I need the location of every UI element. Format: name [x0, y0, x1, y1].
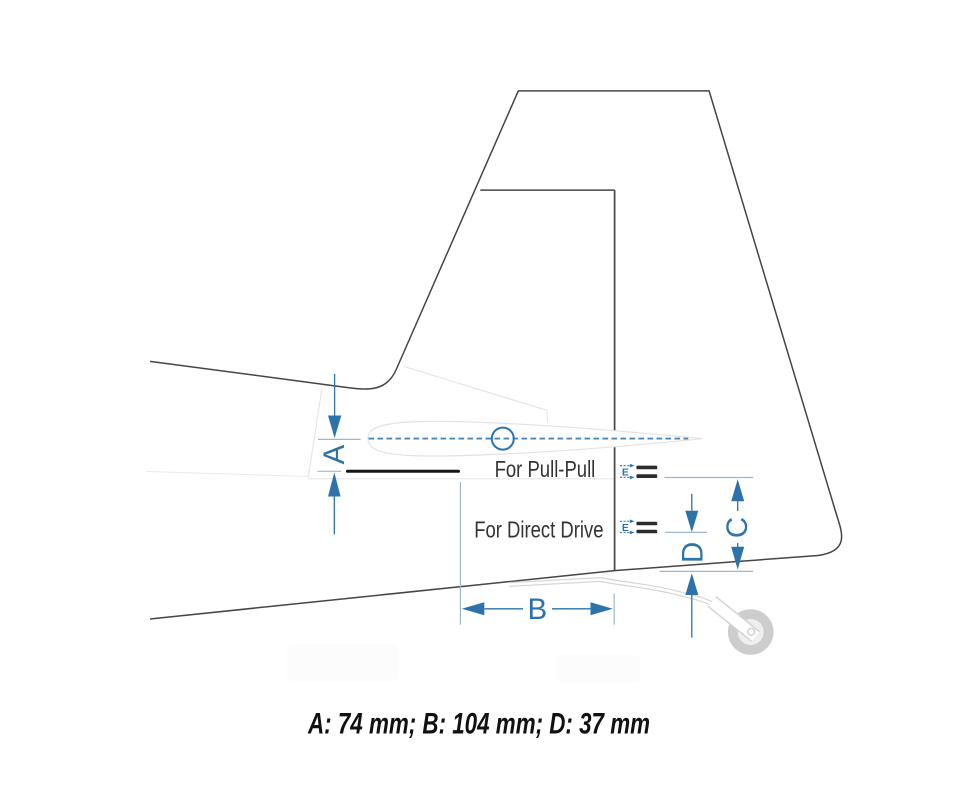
svg-text:B: B: [527, 593, 547, 626]
svg-text:D: D: [676, 542, 709, 563]
svg-text:A: 74 mm; B: 104 mm; D: 37 mm: A: 74 mm; B: 104 mm; D: 37 mm: [307, 708, 650, 741]
svg-text:For Direct Drive: For Direct Drive: [474, 516, 603, 542]
svg-text:C: C: [721, 517, 754, 538]
svg-text:E: E: [622, 467, 629, 478]
svg-text:For Pull-Pull: For Pull-Pull: [495, 456, 596, 482]
svg-text:A: A: [318, 444, 351, 464]
